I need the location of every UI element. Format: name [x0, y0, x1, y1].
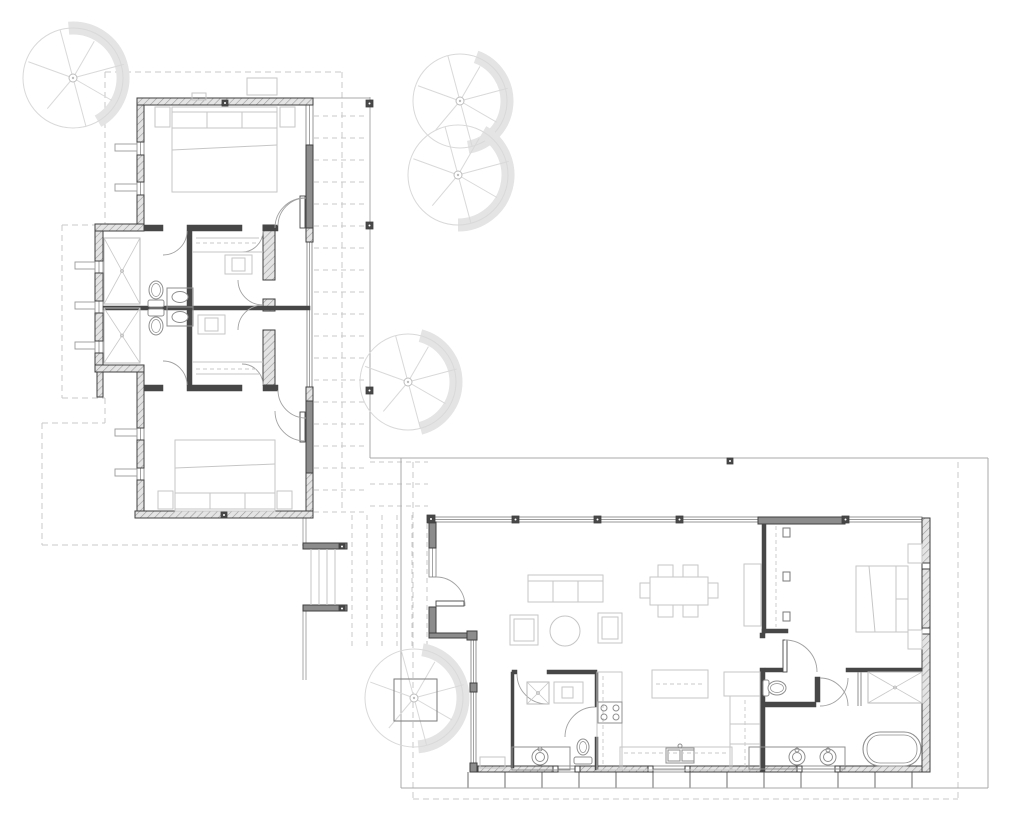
armchair-inner	[514, 619, 534, 641]
tree-branch	[401, 651, 414, 698]
interior-wall	[765, 668, 785, 672]
toilet-tank	[148, 300, 164, 307]
tree-branch	[73, 78, 86, 126]
door-arc	[820, 678, 848, 706]
tree-trunk-center	[459, 100, 461, 102]
dining-chair	[683, 605, 698, 617]
toilet-tank	[148, 309, 164, 316]
door-arc	[163, 361, 187, 385]
refrigerator	[724, 672, 760, 696]
door-arc	[820, 678, 848, 706]
structural-post-dot	[430, 518, 432, 520]
dining-table	[650, 577, 708, 605]
nightstand	[155, 107, 170, 127]
interior-wall	[187, 385, 242, 391]
kitchen-sink-bowl	[682, 750, 694, 761]
dining-chair	[708, 583, 718, 598]
toilet-tank	[574, 757, 592, 764]
bathtub	[863, 732, 921, 766]
tree-branch	[414, 698, 427, 745]
window-post	[575, 766, 580, 772]
door-leaf	[783, 640, 787, 672]
sink-basin	[172, 312, 188, 323]
structural-post-dot	[597, 519, 599, 521]
structural-post-dot	[679, 519, 681, 521]
window-sill	[115, 429, 137, 436]
nightstand	[158, 491, 173, 509]
tree-branch	[458, 175, 497, 198]
interior-wall	[144, 385, 163, 391]
furniture-line	[172, 145, 277, 150]
tree-trunk-center	[72, 77, 74, 79]
window-post	[922, 628, 930, 634]
cabinet	[554, 682, 583, 703]
interior-wall	[760, 633, 765, 638]
dresser	[744, 564, 761, 626]
exterior-wall	[922, 518, 930, 772]
burner	[601, 705, 607, 711]
door-leaf	[300, 196, 305, 228]
sliding-door	[306, 401, 313, 473]
structural-post-dot	[224, 102, 226, 104]
door-arc	[242, 231, 263, 252]
furniture-line	[175, 464, 275, 468]
structural-post-dot	[369, 225, 371, 227]
tree-shadow	[69, 28, 123, 121]
window-post	[648, 766, 653, 772]
tree-branch	[448, 56, 460, 101]
structural-post-dot	[369, 103, 371, 105]
window-sill	[115, 184, 137, 191]
interior-wall	[187, 225, 242, 231]
tree-branch	[414, 662, 435, 698]
exterior-wall	[577, 766, 651, 772]
exterior-wall	[263, 225, 275, 280]
wall	[429, 522, 436, 548]
structural-post-dot	[223, 514, 225, 516]
exterior-wall	[137, 105, 144, 142]
exterior-wall	[137, 372, 144, 428]
closet-dresser-inner	[232, 258, 245, 271]
door-arc	[163, 231, 187, 255]
hanger-tab	[783, 612, 790, 621]
wall	[429, 607, 436, 633]
nightstand	[280, 107, 295, 127]
exterior-wall	[95, 313, 103, 341]
tree-trunk-center	[457, 174, 459, 176]
door-leaf	[436, 601, 464, 606]
floor-plan-drawing	[0, 0, 1024, 840]
dining-chair	[640, 583, 650, 598]
hanger-tab	[783, 572, 790, 581]
bed-pillow-band	[175, 493, 275, 509]
tree-branch	[432, 175, 458, 206]
exterior-wall	[95, 365, 144, 372]
tree-shadow	[418, 650, 463, 747]
armchair-inner	[602, 617, 618, 639]
tree-branch	[396, 336, 408, 382]
equipment-pad	[247, 78, 277, 95]
tree-branch	[408, 382, 420, 428]
interior-wall	[760, 702, 816, 707]
exterior-wall	[306, 387, 313, 401]
tree-branch	[418, 86, 460, 101]
kitchen-counter	[597, 672, 622, 770]
burner	[601, 714, 607, 720]
sink	[789, 749, 805, 765]
nightstand	[277, 491, 292, 509]
exterior-wall	[95, 224, 144, 231]
dining-chair	[658, 565, 673, 577]
window-sill	[75, 302, 95, 309]
hanger-tab	[783, 528, 790, 537]
wall-post	[470, 763, 477, 772]
dining-chair	[683, 565, 698, 577]
tree-branch	[73, 41, 94, 78]
tree-branch	[73, 78, 112, 101]
exterior-wall	[306, 228, 313, 242]
sink	[820, 749, 836, 765]
bed-pillow-band	[172, 112, 277, 128]
tree-branch	[414, 698, 452, 720]
sink-basin	[172, 292, 188, 303]
sliding-door	[306, 145, 313, 228]
tree-shadow	[420, 336, 456, 429]
tree-branch	[460, 101, 497, 122]
door-arc	[565, 707, 595, 737]
tree-trunk-center	[407, 381, 409, 383]
structural-post-dot	[341, 546, 343, 548]
exterior-wall	[95, 231, 103, 261]
floor-plan	[0, 0, 1024, 840]
burner	[613, 714, 619, 720]
nightstand	[908, 544, 922, 563]
nightstand	[908, 630, 922, 649]
interior-wall	[187, 310, 192, 385]
exterior-wall	[95, 353, 103, 365]
tree-branch	[47, 78, 73, 109]
tree-branch	[60, 30, 73, 78]
wall-post	[467, 631, 477, 640]
door-arc	[785, 640, 817, 672]
structural-post-dot	[369, 390, 371, 392]
furniture-line	[869, 566, 875, 632]
interior-wall	[263, 225, 278, 231]
tree-branch	[365, 366, 408, 382]
exterior-wall	[838, 766, 922, 772]
tree-branch	[460, 101, 472, 146]
structural-post-dot	[341, 608, 343, 610]
interior-wall	[815, 677, 820, 702]
sofa	[528, 575, 603, 602]
exterior-wall	[95, 273, 103, 301]
door-leaf	[300, 412, 305, 442]
window-post	[922, 563, 930, 569]
exterior-wall	[263, 330, 275, 385]
exterior-wall	[478, 766, 557, 772]
interior-wall	[547, 670, 597, 674]
tree-trunk-center	[413, 697, 415, 699]
exterior-wall	[137, 440, 144, 468]
tree-branch	[413, 159, 458, 175]
interior-wall	[144, 225, 163, 231]
window-post	[685, 766, 690, 772]
tree-branch	[460, 66, 480, 101]
structural-post-dot	[845, 519, 847, 521]
structural-post-dot	[515, 519, 517, 521]
tree-branch	[458, 175, 471, 223]
window-post	[553, 766, 558, 772]
sink-inner	[793, 753, 802, 762]
exterior-wall	[97, 372, 103, 397]
tree-branch	[383, 382, 408, 411]
tree-branch	[370, 682, 414, 698]
tree-branch	[408, 347, 428, 382]
door-arc	[238, 280, 263, 305]
interior-wall	[263, 385, 278, 391]
window-sill	[75, 262, 95, 269]
tree-branch	[28, 62, 73, 78]
bed	[175, 440, 275, 511]
wall-post	[470, 683, 477, 692]
cabinet-inner	[562, 687, 573, 698]
tree-branch	[408, 382, 445, 404]
window-sill	[115, 144, 137, 151]
sink-inner	[824, 753, 833, 762]
tree-branch	[445, 127, 458, 175]
exterior-wall	[137, 155, 144, 182]
structural-post-dot	[729, 460, 731, 462]
closet-dresser-inner	[205, 318, 218, 331]
interior-wall	[762, 629, 788, 633]
interior-wall	[762, 524, 766, 633]
interior-wall	[846, 668, 922, 672]
stove	[598, 702, 622, 723]
exterior-wall	[137, 480, 144, 511]
kitchen-sink-bowl	[668, 750, 680, 761]
coffee-table	[550, 616, 580, 646]
wall	[429, 633, 469, 638]
window-sill	[75, 342, 95, 349]
sink-inner	[536, 753, 545, 762]
exterior-wall	[306, 473, 313, 511]
dining-chair	[658, 605, 673, 617]
burner	[613, 705, 619, 711]
window-sill	[115, 469, 137, 476]
wall	[758, 517, 845, 524]
